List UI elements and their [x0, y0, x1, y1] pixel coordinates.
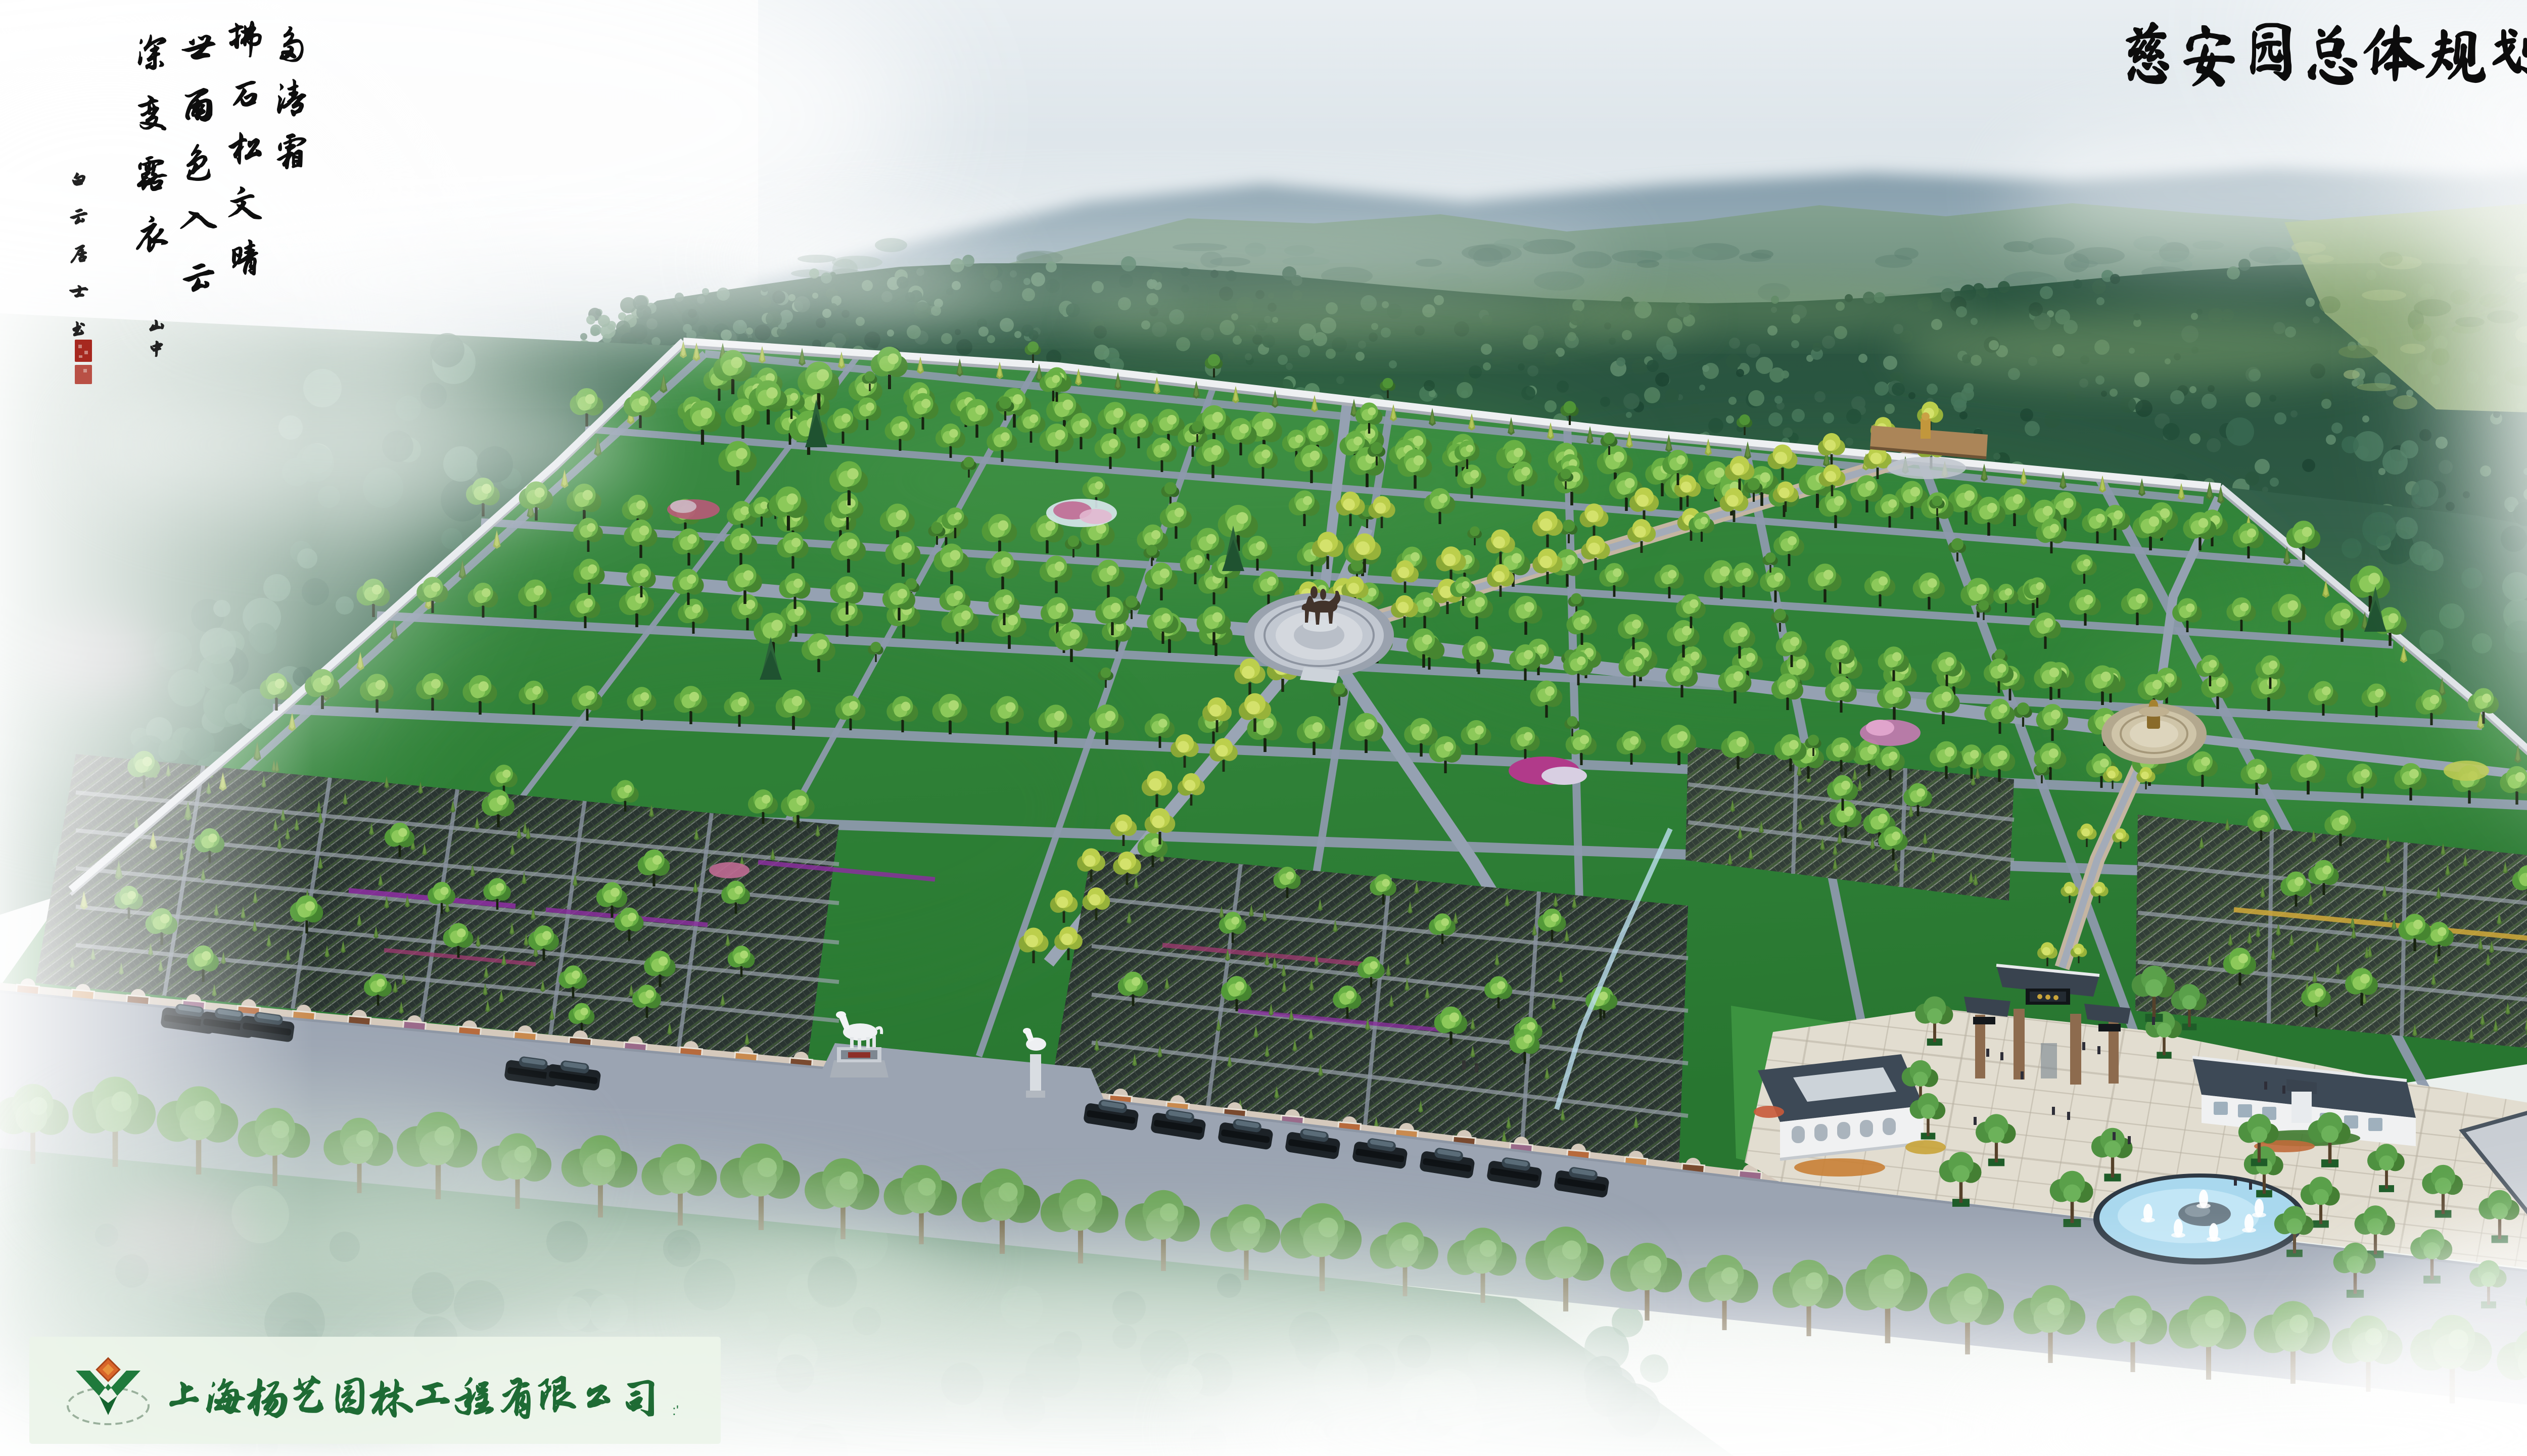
svg-text::': :'	[672, 1402, 679, 1418]
